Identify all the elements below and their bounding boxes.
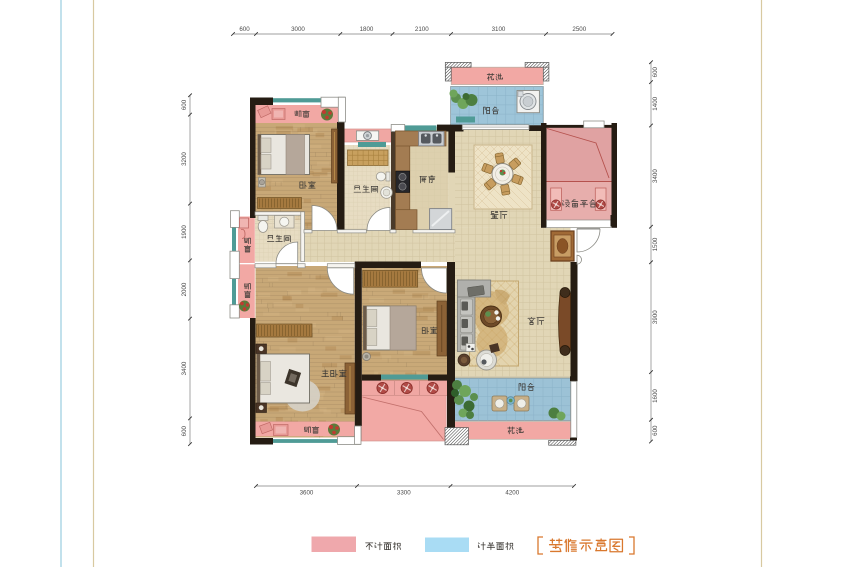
svg-text:3600: 3600 xyxy=(300,490,314,497)
svg-text:3100: 3100 xyxy=(492,26,506,33)
svg-text:1900: 1900 xyxy=(181,225,188,239)
svg-text:600: 600 xyxy=(181,99,188,110)
svg-text:3400: 3400 xyxy=(181,361,188,375)
svg-text:600: 600 xyxy=(652,425,659,436)
svg-text:600: 600 xyxy=(181,425,188,436)
svg-text:1800: 1800 xyxy=(360,26,374,33)
svg-text:3900: 3900 xyxy=(652,310,659,324)
svg-text:2100: 2100 xyxy=(415,26,429,33)
svg-text:1400: 1400 xyxy=(652,96,659,110)
svg-text:3000: 3000 xyxy=(291,26,305,33)
svg-text:600: 600 xyxy=(652,66,659,77)
svg-text:3400: 3400 xyxy=(652,169,659,183)
svg-text:600: 600 xyxy=(239,26,250,33)
svg-text:4200: 4200 xyxy=(505,490,519,497)
svg-text:1500: 1500 xyxy=(652,237,659,251)
svg-text:2500: 2500 xyxy=(572,26,586,33)
svg-text:1600: 1600 xyxy=(652,389,659,403)
svg-text:3300: 3300 xyxy=(397,490,411,497)
svg-text:2000: 2000 xyxy=(181,282,188,296)
svg-text:3200: 3200 xyxy=(181,152,188,166)
